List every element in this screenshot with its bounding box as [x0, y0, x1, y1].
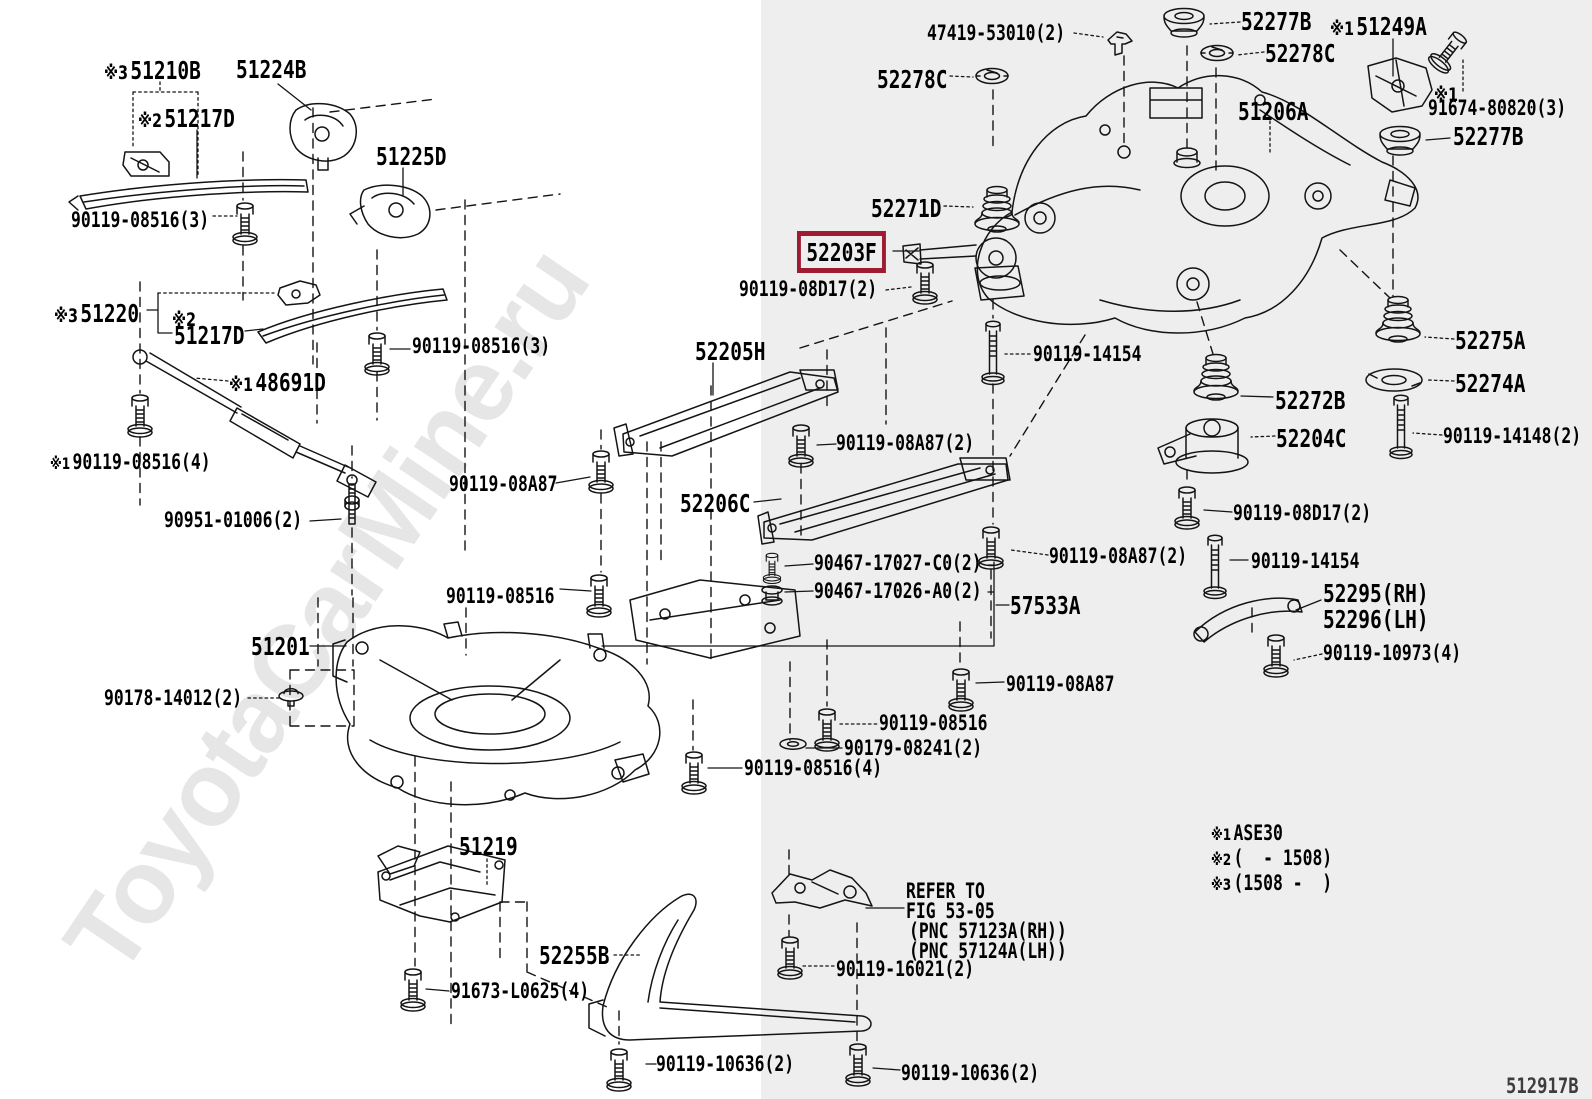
label-90119-08516-3-b[interactable]: 90119-08516(3)	[412, 336, 550, 357]
note-2: ※2( - 1508)	[1211, 848, 1332, 869]
label-90119-14148[interactable]: 90119-14148(2)	[1443, 426, 1581, 447]
label-90119-10636-right[interactable]: 90119-10636(2)	[901, 1063, 1039, 1084]
label-91673-l0625[interactable]: 91673-L0625(4)	[451, 981, 589, 1002]
label-51217d-upper[interactable]: ※251217D	[138, 106, 235, 132]
label-52272b[interactable]: 52272B	[1275, 388, 1345, 413]
drawing-number: 512917B	[1506, 1074, 1579, 1098]
label-51201[interactable]: 51201	[251, 634, 310, 659]
note-1: ※1ASE30	[1211, 823, 1283, 844]
label-52278c-right[interactable]: 52278C	[1265, 41, 1335, 66]
label-90119-08516-mid[interactable]: 90119-08516	[879, 713, 987, 734]
label-90119-08a87-left[interactable]: 90119-08A87	[449, 474, 557, 495]
label-90119-14154-right[interactable]: 90119-14154	[1251, 551, 1359, 572]
label-51210b[interactable]: ※351210B	[104, 58, 201, 84]
label-52274a[interactable]: 52274A	[1455, 371, 1525, 396]
label-layer: ※351210B51224B※251217D51225D90119-08516(…	[0, 0, 1592, 1099]
label-52204c[interactable]: 52204C	[1276, 426, 1346, 451]
label-52255b[interactable]: 52255B	[539, 943, 609, 968]
label-91674-80820[interactable]: 91674-80820(3)	[1428, 98, 1566, 119]
label-52296-lh[interactable]: 52296(LH)	[1323, 607, 1429, 632]
label-90119-08516-3-a[interactable]: 90119-08516(3)	[71, 210, 209, 231]
label-90119-08d17-right[interactable]: 90119-08D17(2)	[1233, 503, 1371, 524]
label-52205h[interactable]: 52205H	[695, 339, 765, 364]
label-51206a[interactable]: 51206A	[1238, 99, 1308, 124]
label-90119-08a87-2-right[interactable]: 90119-08A87(2)	[1049, 546, 1187, 567]
note-3: ※3(1508 - )	[1211, 873, 1332, 894]
label-51224b[interactable]: 51224B	[236, 57, 306, 82]
label-90119-10636-left[interactable]: 90119-10636(2)	[656, 1054, 794, 1075]
label-90119-08a87-bottom[interactable]: 90119-08A87	[1006, 674, 1114, 695]
label-52206c[interactable]: 52206C	[680, 491, 750, 516]
label-52275a[interactable]: 52275A	[1455, 328, 1525, 353]
label-90467-17026[interactable]: 90467-17026-A0(2)	[814, 581, 982, 602]
label-48691d[interactable]: ※148691D	[229, 370, 326, 396]
label-90119-10973[interactable]: 90119-10973(4)	[1323, 643, 1461, 664]
label-51249a[interactable]: ※151249A	[1330, 14, 1427, 40]
label-52278c-left[interactable]: 52278C	[877, 67, 947, 92]
label-90119-14154-top[interactable]: 90119-14154	[1033, 344, 1141, 365]
parts-diagram: ToyotaCarMine.ru ToyotaCarMine.ru	[0, 0, 1592, 1099]
label-51225d[interactable]: 51225D	[376, 144, 446, 169]
label-57533a[interactable]: 57533A	[1010, 593, 1080, 618]
label-90467-17027[interactable]: 90467-17027-C0(2)	[814, 553, 982, 574]
label-90119-16021[interactable]: 90119-16021(2)	[836, 959, 974, 980]
label-51217d-lower[interactable]: 51217D	[174, 323, 244, 348]
label-51219[interactable]: 51219	[459, 834, 518, 859]
label-47419-53010[interactable]: 47419-53010(2)	[927, 23, 1065, 44]
label-52203f[interactable]: 52203F	[797, 231, 886, 273]
label-90178-14012[interactable]: 90178-14012(2)	[104, 688, 242, 709]
label-51220[interactable]: ※351220	[54, 301, 139, 327]
label-90119-08516-4-mid[interactable]: 90119-08516(4)	[744, 758, 882, 779]
label-90119-08516-left[interactable]: 90119-08516	[446, 586, 554, 607]
label-90951-01006[interactable]: 90951-01006(2)	[164, 510, 302, 531]
label-52277b-top[interactable]: 52277B	[1241, 9, 1311, 34]
label-90119-08a87-2-mid[interactable]: 90119-08A87(2)	[836, 433, 974, 454]
label-52295-rh[interactable]: 52295(RH)	[1323, 581, 1429, 606]
label-52271d[interactable]: 52271D	[871, 196, 941, 221]
label-90119-08516-4-left[interactable]: ※190119-08516(4)	[50, 452, 211, 473]
label-90119-08d17-left[interactable]: 90119-08D17(2)	[739, 279, 877, 300]
label-52277b-right[interactable]: 52277B	[1453, 124, 1523, 149]
